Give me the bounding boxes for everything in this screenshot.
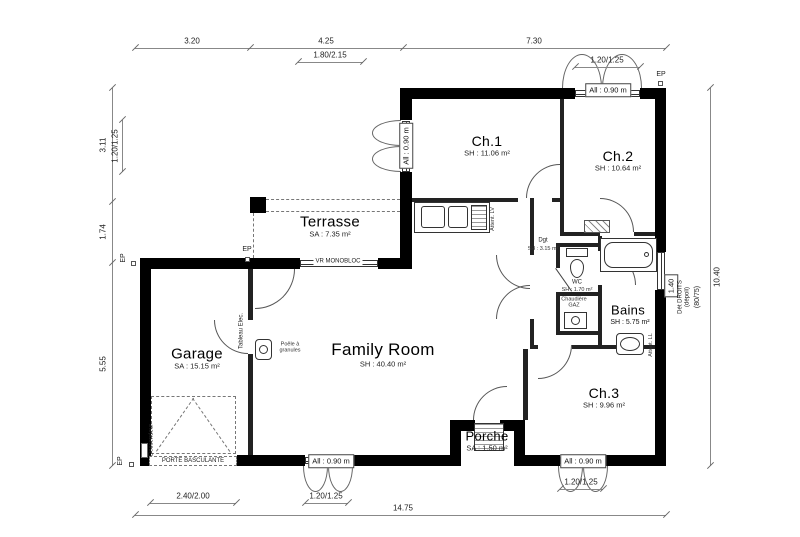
dimension-line xyxy=(560,489,603,490)
boiler-dial xyxy=(571,316,580,325)
terrasse-dashed-edge xyxy=(266,211,400,212)
window-swing-arc xyxy=(372,120,401,146)
terrasse-dashed-edge xyxy=(266,199,400,200)
room-name-ch3: Ch.3 xyxy=(589,385,620,401)
window-swing-arc xyxy=(328,466,353,492)
window-swing-arc xyxy=(372,146,401,172)
wall-ch1-bottom xyxy=(552,198,564,202)
dimension-label: 1.80/2.15 xyxy=(313,50,346,59)
toilet-tank xyxy=(566,248,588,257)
closet-hatch xyxy=(584,220,610,233)
door-arc-ch3 xyxy=(538,345,572,379)
dimension-line xyxy=(122,120,123,172)
room-name-garage: Garage xyxy=(171,345,223,362)
wall-garage-right xyxy=(248,269,253,320)
ep-marker-label: EP xyxy=(656,71,665,79)
pellet-stove-door xyxy=(259,345,268,354)
dimension-line xyxy=(710,88,711,466)
dimension-line xyxy=(575,67,640,68)
room-area-family: SH : 40.40 m² xyxy=(360,361,406,370)
wall-top-a xyxy=(400,88,575,99)
door-arc-hall-1 xyxy=(496,255,530,289)
door-arc-ch1 xyxy=(526,164,560,198)
dimension-label: 2.40/2.00 xyxy=(176,491,209,500)
wall-bottom-a xyxy=(237,455,305,466)
pellet-stove-label: Poêle à granules xyxy=(279,342,300,355)
dimension-label: 1.20/1.25 xyxy=(590,55,623,64)
dimension-label: 5.55 xyxy=(100,356,109,372)
room-area-terrasse: SA : 7.35 m² xyxy=(309,231,350,240)
room-name-porche: Porche xyxy=(466,430,509,445)
toilet-bowl xyxy=(570,259,584,278)
ep-marker-label: EP xyxy=(117,456,125,465)
window-sill-label: All : 0.90 m xyxy=(308,454,354,468)
dimension-line xyxy=(305,503,348,504)
dimension-label: 3.20 xyxy=(184,36,200,45)
room-area-ch3: SH : 9.96 m² xyxy=(583,402,625,411)
window-sill-label: 1.40 xyxy=(664,275,678,298)
wall-ch3-top xyxy=(530,345,538,349)
dimension-label: 4.25 xyxy=(318,36,334,45)
room-name-family: Family Room xyxy=(331,340,434,360)
bathtub-drain xyxy=(644,252,649,257)
wall-bottom-c xyxy=(525,455,560,466)
room-name-ch2: Ch.2 xyxy=(603,148,634,164)
wall-ch1-ch2 xyxy=(560,99,564,232)
boiler-label: Chaudière GAZ xyxy=(561,297,586,310)
room-name-wc: WC xyxy=(572,280,582,287)
dimension-label: 10.40 xyxy=(714,267,723,287)
wall-hall-left xyxy=(530,319,534,345)
room-area-bains: SH : 5.75 m² xyxy=(610,319,649,327)
ep-marker-label: EP xyxy=(242,246,251,254)
room-name-ch1: Ch.1 xyxy=(472,133,503,149)
room-area-ch1: SH : 11.06 m² xyxy=(464,150,510,159)
dimension-label: 1.20/1.25 xyxy=(112,129,121,162)
kitchen-drainer xyxy=(471,205,487,230)
dimension-tick xyxy=(109,462,116,469)
wall-boiler-left xyxy=(556,296,560,335)
room-area-wc: SH : 1.70 m² xyxy=(562,287,593,293)
garage-door-swing xyxy=(151,396,236,454)
floor-plan: All : 0.90 m All : 0.90 m All : 0.90 m A… xyxy=(0,0,800,537)
wall-bottom-d xyxy=(603,455,666,466)
door-arc-entry xyxy=(473,386,507,420)
dimension-line xyxy=(135,515,666,516)
dishwasher-hookup-label: Attent. LV xyxy=(490,207,496,231)
washbasin-bowl xyxy=(620,337,640,351)
wall-right-b xyxy=(655,290,666,466)
wall-bottom-b xyxy=(348,455,450,466)
wall-garage-right xyxy=(248,354,253,455)
dimension-tick xyxy=(345,499,352,506)
dimension-label: 14.75 xyxy=(393,503,413,512)
ep-marker xyxy=(658,81,663,86)
window-glass-note: Dét DROITS (dépoli) xyxy=(677,280,690,314)
room-area-porche: SA : 1.50 m² xyxy=(466,445,507,454)
ep-marker xyxy=(131,261,136,266)
wall-ch1-left-a xyxy=(400,99,412,120)
downspout-niche xyxy=(141,443,148,458)
wall-boiler-bottom xyxy=(556,331,602,335)
dimension-label: (80/75) xyxy=(694,286,702,308)
kitchen-sink xyxy=(448,206,468,228)
window-sill-label: All : 0.90 m xyxy=(585,83,631,97)
dimension-line xyxy=(150,503,236,504)
room-name-terrasse: Terrasse xyxy=(300,213,360,230)
window-sill-label: All : 0.90 m xyxy=(560,454,606,468)
wall-wc-top xyxy=(556,243,602,247)
descendeur-label: Descendeur xyxy=(149,424,156,456)
garage-door-label: PORTE BASCULANTE xyxy=(149,456,237,466)
dimension-tick xyxy=(707,462,714,469)
ep-marker xyxy=(245,257,250,262)
washer-hookup-label: Attent. LL xyxy=(648,333,654,357)
wall-ch1-left-b xyxy=(400,172,412,258)
room-area-dgt: SH : 3.15 m² xyxy=(528,246,559,252)
dimension-tick xyxy=(233,499,240,506)
dimension-label: 1.20/1.25 xyxy=(309,491,342,500)
dimension-tick xyxy=(360,58,367,65)
ep-marker xyxy=(129,462,134,467)
wall-right-a xyxy=(655,88,666,252)
door-arc-terrasse xyxy=(255,269,295,309)
dimension-label: 1.74 xyxy=(100,224,109,240)
room-name-bains: Bains xyxy=(611,304,645,319)
wall-ch3-left xyxy=(523,349,528,420)
dimension-label: 3.11 xyxy=(100,138,109,153)
terrasse-dashed-edge xyxy=(253,213,254,258)
dimension-tick xyxy=(663,44,670,51)
room-area-ch2: SH : 10.64 m² xyxy=(595,165,641,174)
vr-monobloc-label: VR MONOBLOC xyxy=(313,259,362,266)
window-swing-arc xyxy=(303,466,328,492)
room-name-dgt: Dgt xyxy=(538,238,547,245)
wall-mid-a xyxy=(140,258,300,269)
dimension-label: 7.30 xyxy=(526,36,542,45)
dimension-tick xyxy=(663,511,670,518)
kitchen-sink xyxy=(421,206,445,228)
wall-mid-b xyxy=(378,258,412,269)
door-arc-hall-2 xyxy=(496,285,530,319)
window-sill-label: All : 0.90 m xyxy=(399,123,413,169)
ep-marker-label: EP xyxy=(120,253,128,262)
dimension-line xyxy=(298,62,363,63)
dimension-tick xyxy=(119,168,126,175)
terrasse-post xyxy=(250,197,266,213)
electrical-panel-label: Tableau Elec. xyxy=(239,313,246,349)
dimension-label: 1.20/1.25 xyxy=(564,477,597,486)
wall-ch2-bottom xyxy=(634,232,655,236)
room-area-garage: SA : 15.15 m² xyxy=(174,363,219,372)
